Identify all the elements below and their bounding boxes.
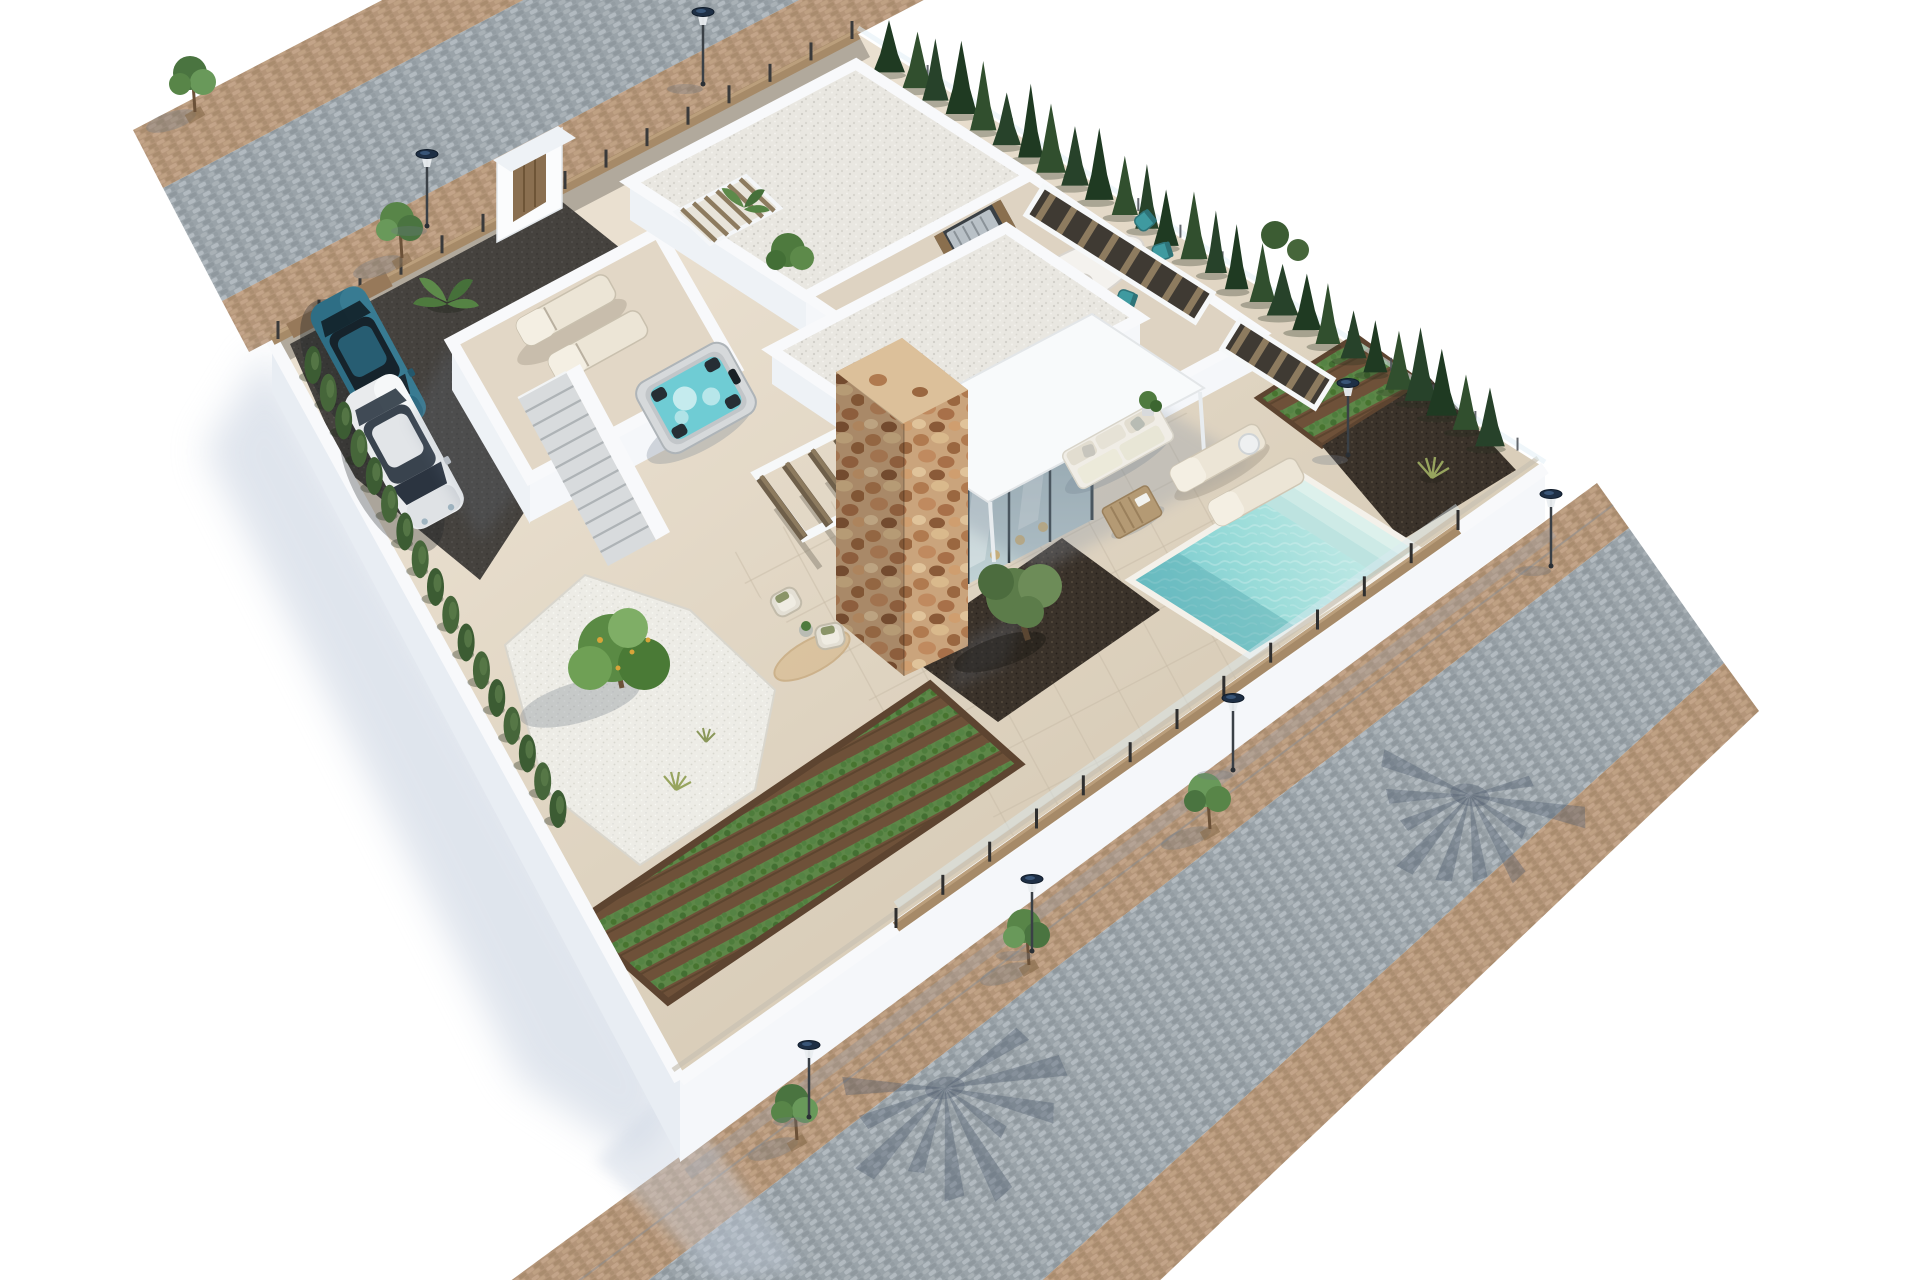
side-pot-plant: [801, 621, 811, 631]
wicker-armchair-2: [814, 621, 846, 650]
garden-shrubs-ne: [1261, 221, 1309, 261]
stone-pillar: [836, 338, 968, 676]
lounger-side-table: [1239, 434, 1259, 454]
villa-render: [0, 0, 1920, 1280]
villa-render-stage: [0, 0, 1920, 1280]
